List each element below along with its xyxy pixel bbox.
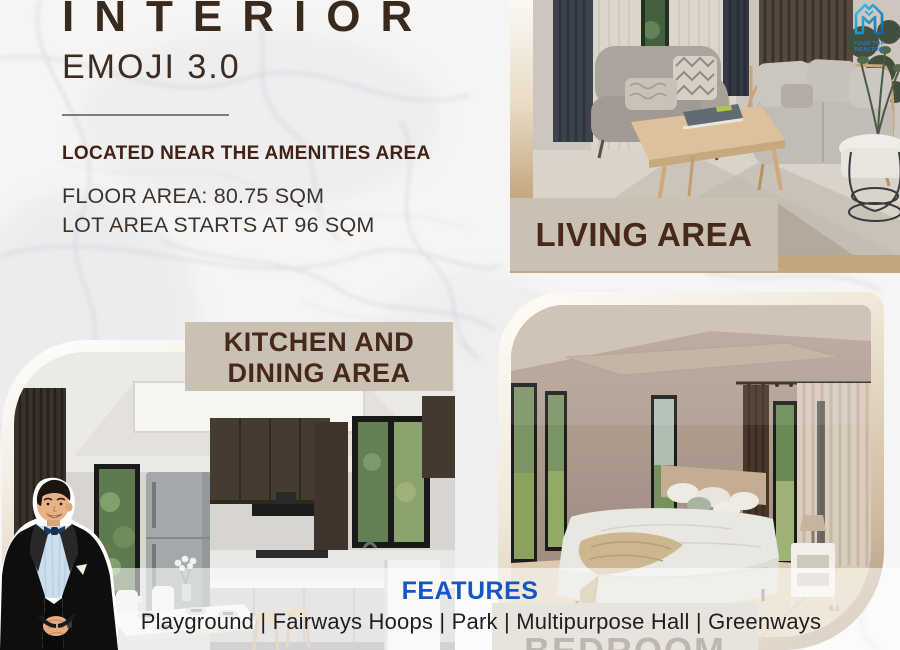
page-title: INTERIOR: [62, 0, 492, 41]
logo-building-icon: [852, 3, 886, 35]
agent-photo: [0, 476, 118, 650]
features-list: Playground | Fairways Hoops | Park | Mul…: [31, 609, 900, 635]
features-band: FEATURES Playground | Fairways Hoops | P…: [0, 568, 900, 650]
page-subtitle: EMOJI 3.0: [62, 48, 492, 87]
kitchen-label-line2: DINING AREA: [185, 358, 453, 389]
features-heading: FEATURES: [20, 577, 900, 606]
logo-text: YOUR TOP REALTOR: [840, 41, 898, 53]
kitchen-label-line1: KITCHEN AND: [185, 327, 453, 358]
lot-area-text: LOT AREA STARTS AT 96 SQM: [62, 211, 492, 240]
floor-area-text: FLOOR AREA: 80.75 SQM: [62, 182, 492, 211]
divider: [62, 114, 229, 116]
kitchen-label: KITCHEN AND DINING AREA: [185, 322, 453, 391]
location-note: LOCATED NEAR THE AMENITIES AREA: [62, 143, 492, 165]
flyer-canvas: INTERIOR EMOJI 3.0 LOCATED NEAR THE AMEN…: [0, 0, 900, 650]
area-specs: FLOOR AREA: 80.75 SQM LOT AREA STARTS AT…: [62, 182, 492, 240]
living-area-label: LIVING AREA: [510, 198, 778, 271]
brand-logo: YOUR TOP REALTOR: [840, 3, 898, 53]
headline: INTERIOR EMOJI 3.0 LOCATED NEAR THE AMEN…: [62, 0, 492, 240]
